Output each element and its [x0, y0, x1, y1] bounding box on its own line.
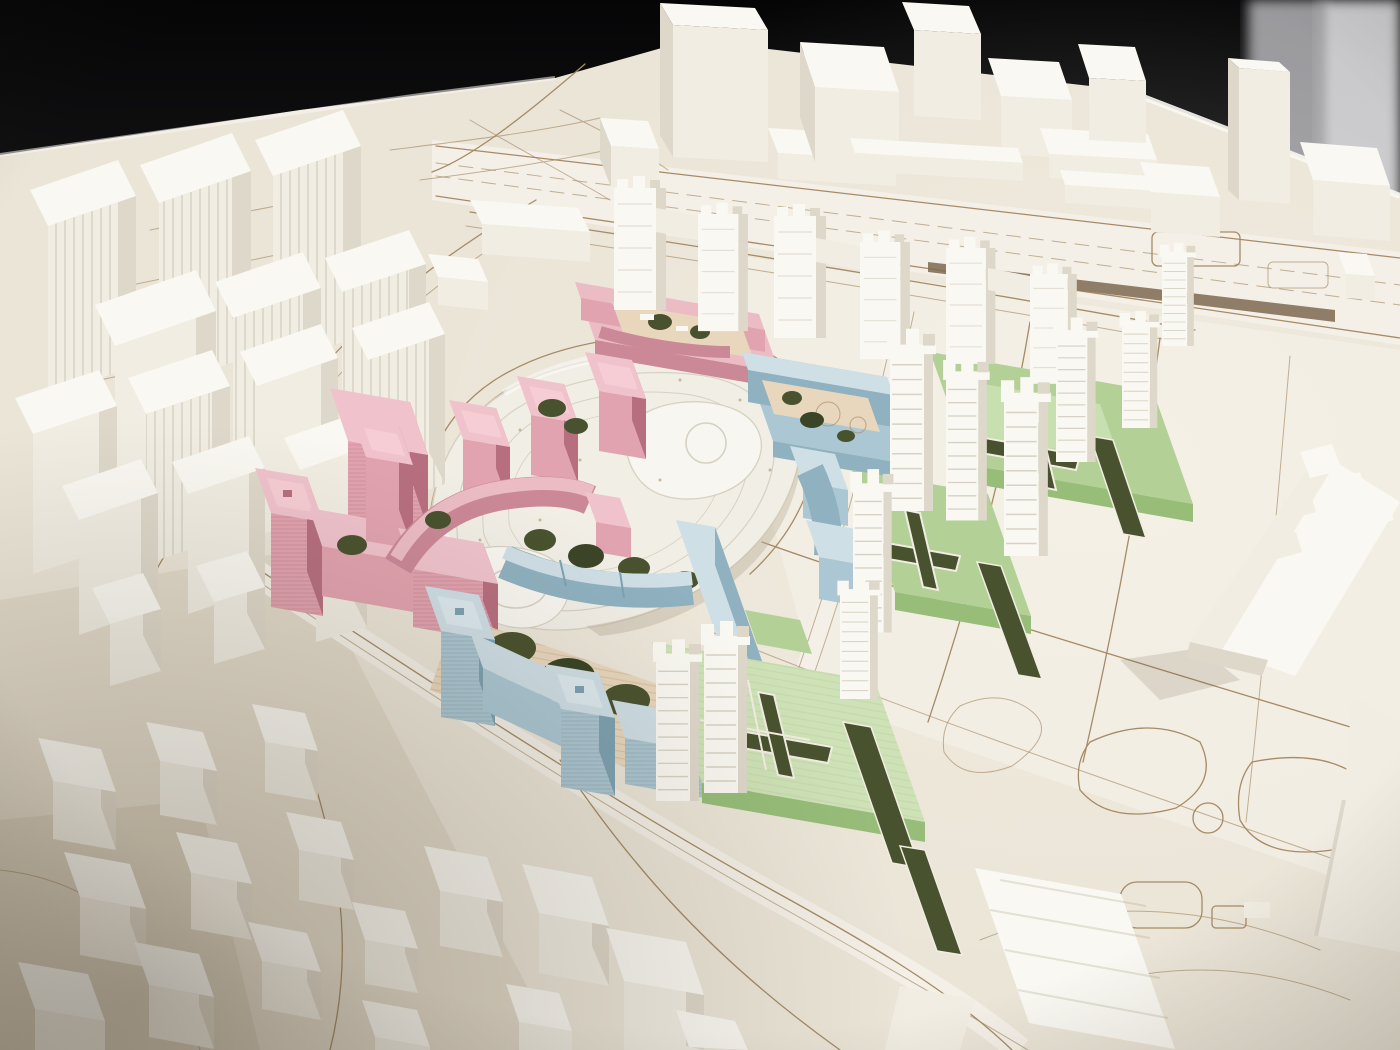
- photo-lighting-overlay: [0, 0, 1400, 1050]
- model-photo-canvas: [0, 0, 1400, 1050]
- photo-architectural-model: [0, 0, 1400, 1050]
